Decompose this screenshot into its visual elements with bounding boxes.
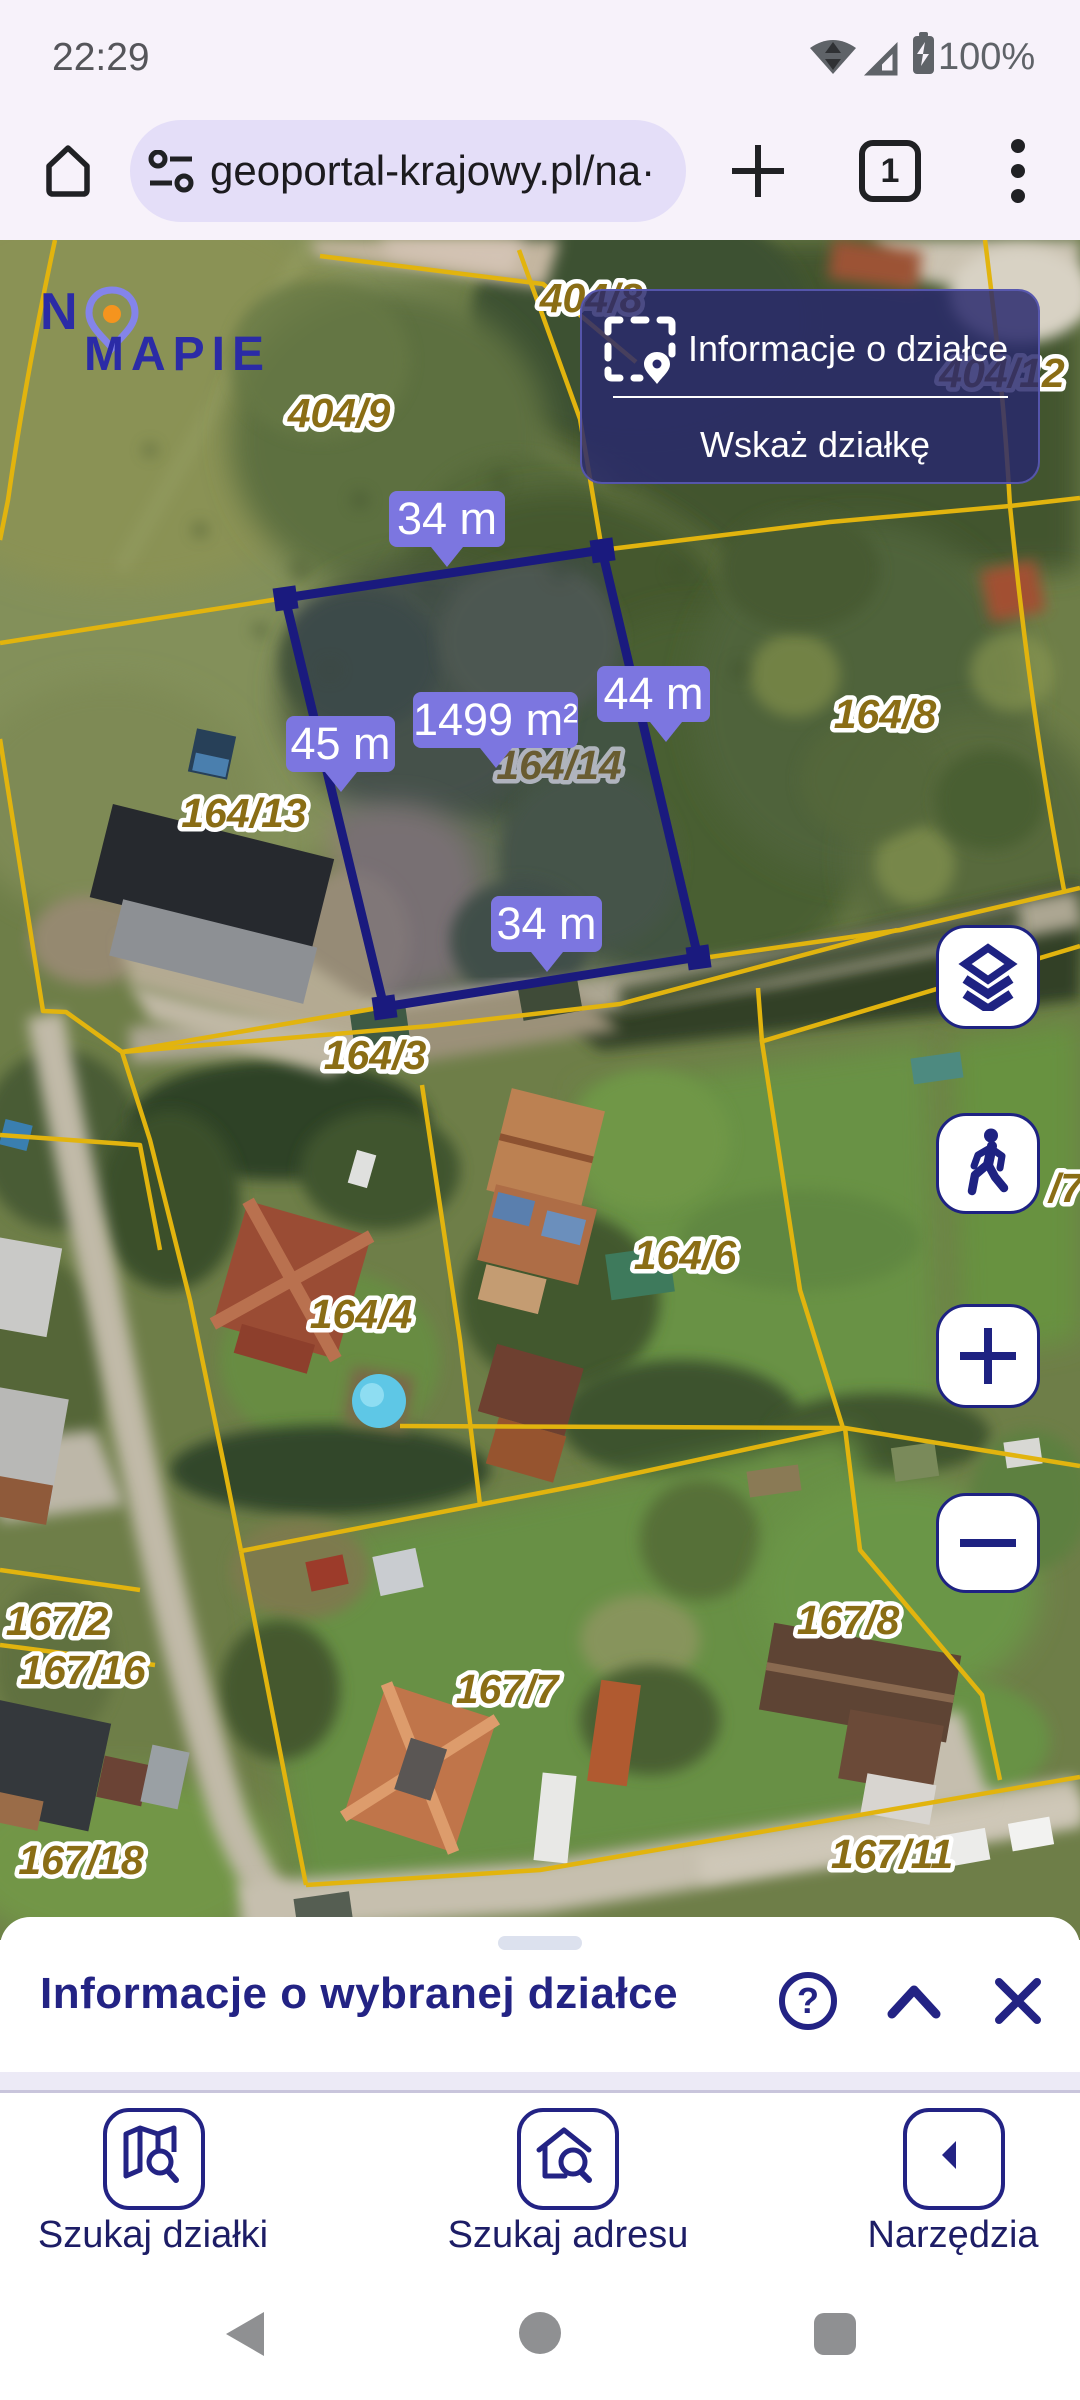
svg-text:/7: /7: [1047, 1165, 1080, 1211]
svg-text:167/18: 167/18: [18, 1837, 144, 1883]
svg-text:?: ?: [797, 1980, 819, 2021]
svg-text:164/4: 164/4: [310, 1291, 413, 1337]
svg-text:404/9: 404/9: [287, 390, 391, 436]
svg-text:164/6: 164/6: [634, 1232, 738, 1278]
svg-text:164/3: 164/3: [324, 1032, 427, 1078]
svg-text:167/2: 167/2: [6, 1598, 109, 1644]
svg-text:167/7: 167/7: [456, 1666, 561, 1712]
svg-text:167/11: 167/11: [831, 1831, 953, 1877]
svg-text:167/8: 167/8: [797, 1597, 900, 1643]
svg-text:164/8: 164/8: [834, 691, 937, 737]
svg-text:164/13: 164/13: [181, 790, 307, 836]
svg-text:167/16: 167/16: [20, 1647, 147, 1693]
